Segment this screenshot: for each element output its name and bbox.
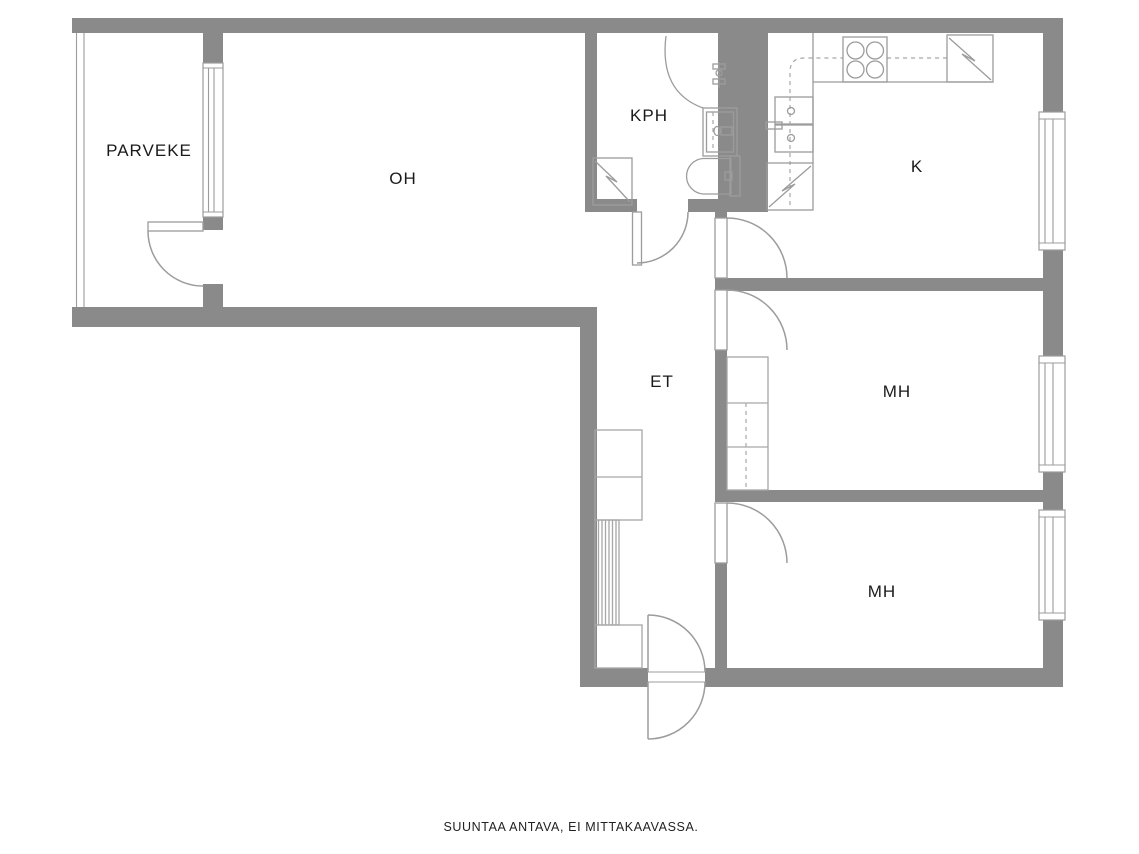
balcony-window — [203, 63, 223, 217]
bedroom1-wardrobe-icon — [727, 357, 768, 490]
room-label-living: OH — [389, 169, 417, 188]
room-label-bathroom: KPH — [630, 106, 668, 125]
bathroom-door — [633, 212, 689, 265]
disclaimer-note: SUUNTAA ANTAVA, EI MITTAKAAVASSA. — [443, 820, 698, 834]
balcony-door — [148, 222, 203, 286]
appliance-reservation-icon — [593, 158, 632, 205]
bedroom1-window — [1039, 356, 1065, 472]
entrance-door — [648, 615, 705, 739]
room-label-bedroom2: MH — [868, 582, 896, 601]
shower-icon — [665, 36, 703, 108]
kitchen-door — [715, 218, 787, 278]
wardrobe-icon — [595, 430, 642, 520]
room-label-bedroom1: MH — [883, 382, 911, 401]
coat-rack-icon — [595, 520, 619, 625]
stove-icon — [843, 37, 887, 82]
cabinet-icon — [595, 625, 642, 668]
bedroom2-door — [715, 503, 787, 563]
balcony-railing — [77, 33, 85, 307]
kitchen-fixtures — [766, 33, 993, 210]
room-label-balcony: PARVEKE — [106, 141, 192, 160]
floor-plan-drawing: PARVEKE OH KPH K ET MH MH SUUNTAA ANTAVA… — [0, 0, 1139, 854]
hallway-furniture — [595, 430, 642, 668]
bedroom1-door — [715, 290, 787, 350]
floor-plan-page: PARVEKE OH KPH K ET MH MH SUUNTAA ANTAVA… — [0, 0, 1139, 854]
kitchen-window — [1039, 112, 1065, 250]
bedroom2-window — [1039, 510, 1065, 620]
room-label-hallway: ET — [650, 372, 674, 391]
room-label-kitchen: K — [911, 157, 923, 176]
fridge-icon — [947, 35, 993, 82]
